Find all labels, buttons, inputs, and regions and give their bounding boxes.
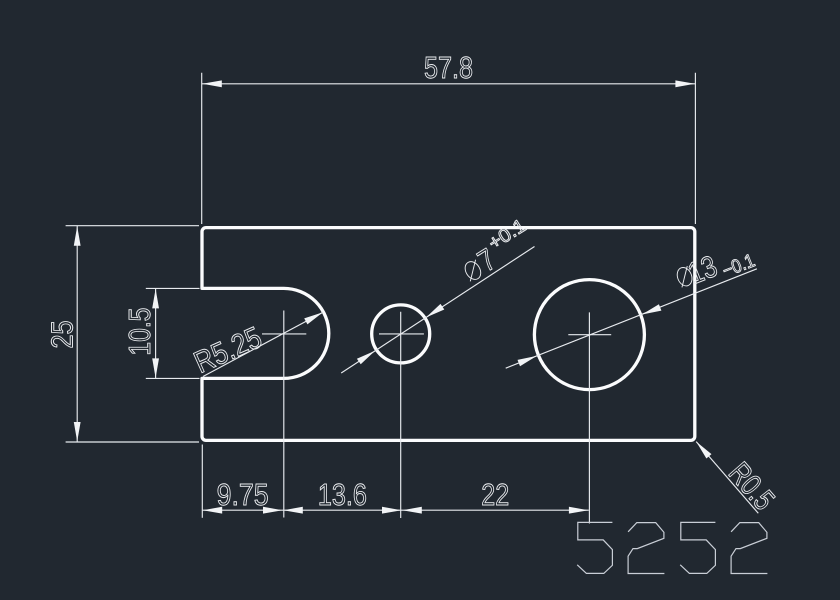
svg-text:9.75: 9.75 bbox=[217, 478, 269, 512]
svg-text:22: 22 bbox=[481, 478, 509, 512]
svg-text:13.6: 13.6 bbox=[318, 478, 367, 512]
svg-text:25: 25 bbox=[45, 321, 79, 349]
svg-text:57.8: 57.8 bbox=[424, 51, 473, 85]
svg-text:10.5: 10.5 bbox=[123, 308, 157, 356]
